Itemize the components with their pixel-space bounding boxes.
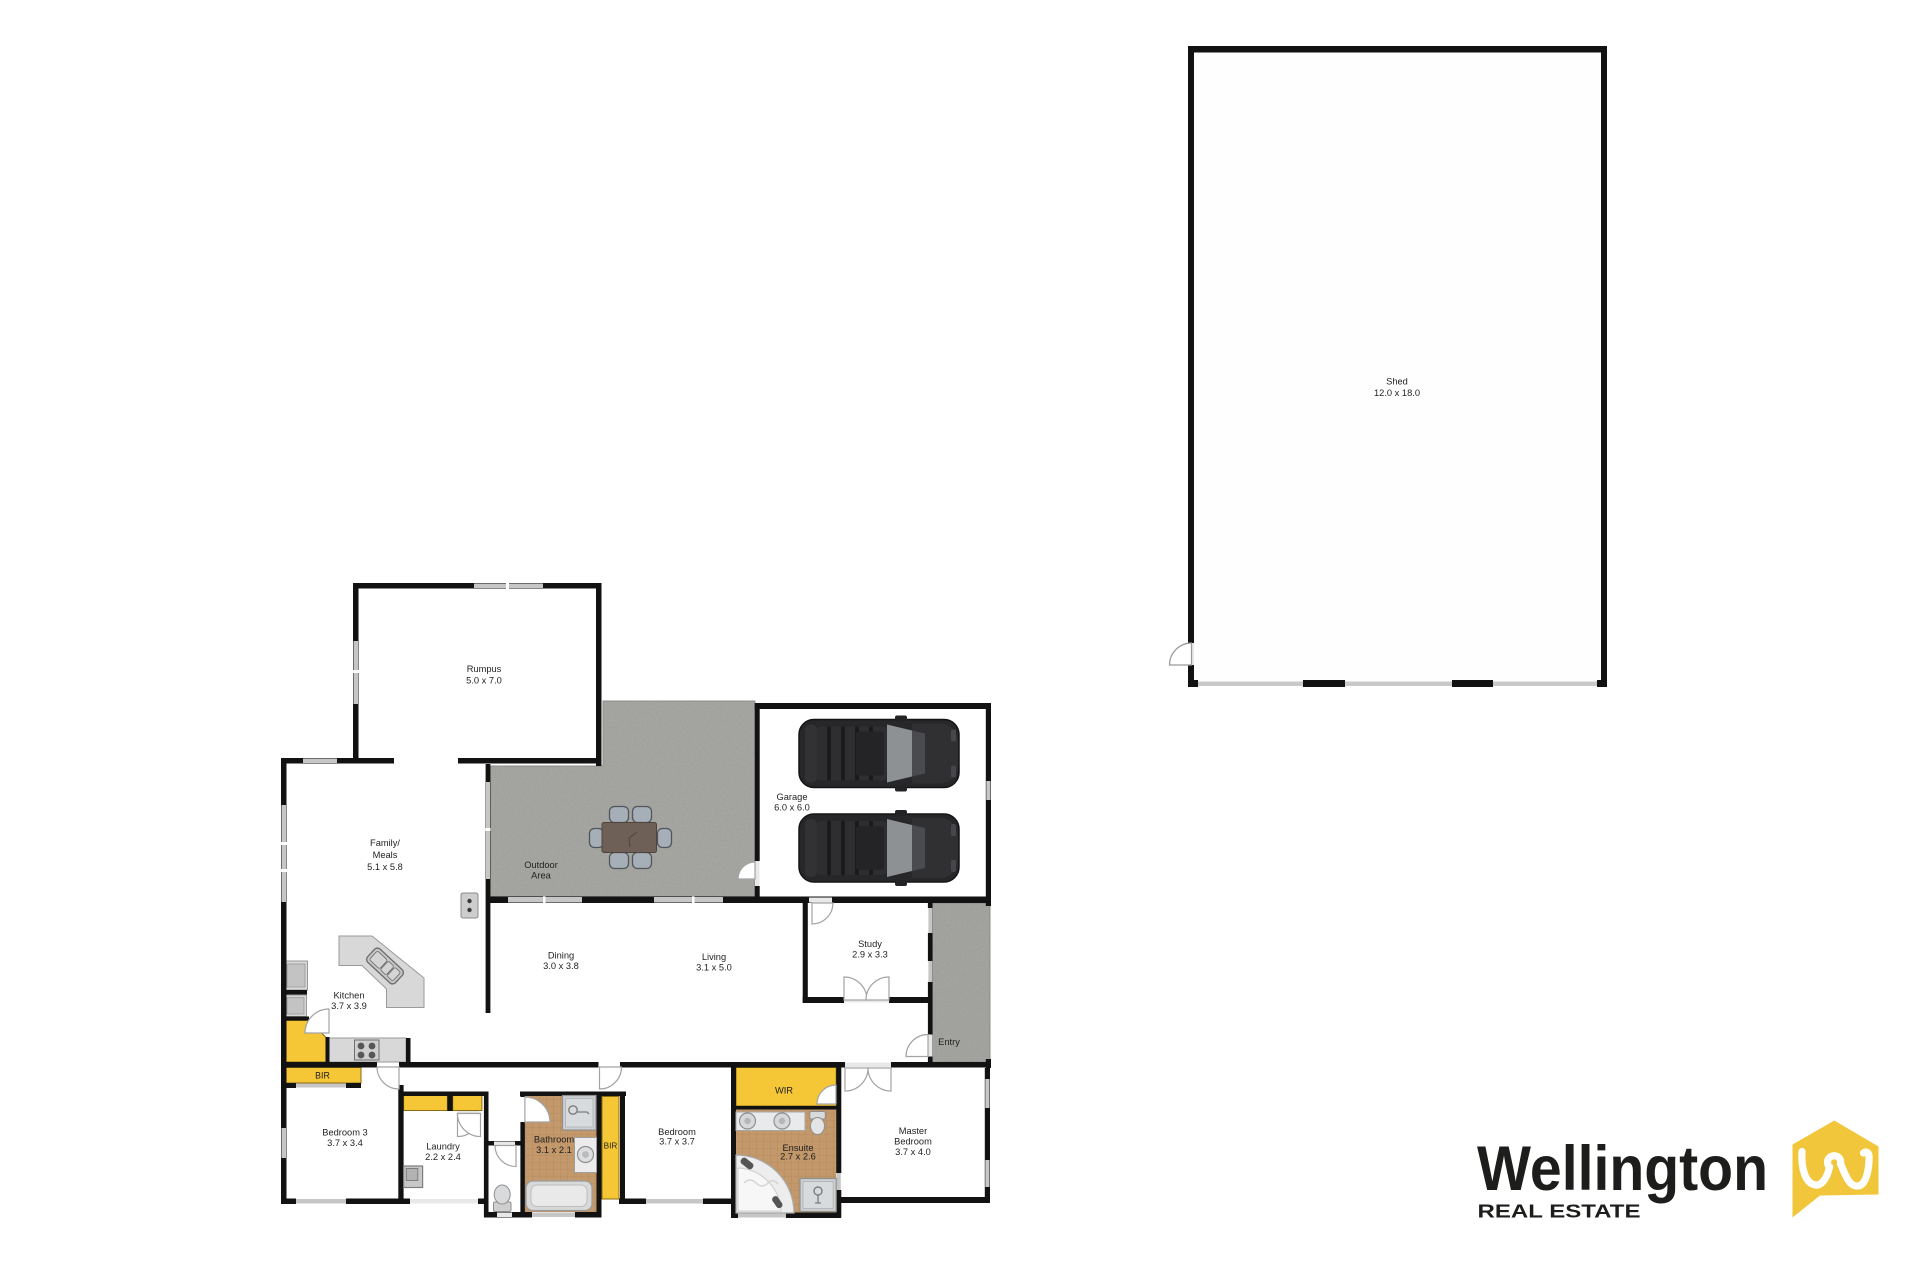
svg-text:Shed: Shed <box>1386 377 1408 387</box>
svg-text:Kitchen: Kitchen <box>333 991 364 1001</box>
svg-text:BIR: BIR <box>604 1142 618 1151</box>
svg-text:REAL ESTATE: REAL ESTATE <box>1478 1201 1641 1222</box>
svg-text:WIR: WIR <box>775 1086 793 1096</box>
svg-text:Garage: Garage <box>776 792 807 802</box>
svg-text:Entry: Entry <box>938 1037 960 1047</box>
svg-text:Wellington: Wellington <box>1477 1134 1768 1204</box>
svg-text:Bedroom: Bedroom <box>894 1137 932 1147</box>
svg-text:Living: Living <box>702 952 726 962</box>
svg-text:3.0 x 3.8: 3.0 x 3.8 <box>543 961 579 971</box>
svg-text:2.2 x 2.4: 2.2 x 2.4 <box>425 1152 461 1162</box>
svg-text:Laundry: Laundry <box>426 1142 460 1152</box>
svg-text:Dining: Dining <box>548 951 574 961</box>
svg-text:3.1 x 2.1: 3.1 x 2.1 <box>536 1145 572 1155</box>
svg-text:3.1 x 5.0: 3.1 x 5.0 <box>696 963 732 973</box>
svg-text:Bathroom: Bathroom <box>534 1135 575 1145</box>
svg-text:Area: Area <box>531 871 551 881</box>
svg-text:3.7 x 4.0: 3.7 x 4.0 <box>895 1147 931 1157</box>
svg-text:Study: Study <box>858 939 882 949</box>
svg-text:2.9 x 3.3: 2.9 x 3.3 <box>852 950 888 960</box>
svg-text:5.1 x 5.8: 5.1 x 5.8 <box>367 862 403 872</box>
svg-text:Bedroom 3: Bedroom 3 <box>322 1128 367 1138</box>
svg-text:3.7 x 3.7: 3.7 x 3.7 <box>659 1137 695 1147</box>
svg-text:Family/: Family/ <box>370 838 400 848</box>
svg-text:Rumpus: Rumpus <box>467 664 502 674</box>
svg-text:2.7 x 2.6: 2.7 x 2.6 <box>780 1152 816 1162</box>
svg-text:12.0 x 18.0: 12.0 x 18.0 <box>1374 388 1420 398</box>
svg-text:5.0 x 7.0: 5.0 x 7.0 <box>466 676 502 686</box>
svg-text:3.7 x 3.4: 3.7 x 3.4 <box>327 1138 363 1148</box>
svg-text:BIR: BIR <box>315 1071 330 1081</box>
svg-text:Outdoor: Outdoor <box>524 860 558 870</box>
svg-text:Bedroom: Bedroom <box>658 1127 696 1137</box>
svg-text:Meals: Meals <box>373 850 398 860</box>
svg-text:6.0 x 6.0: 6.0 x 6.0 <box>774 803 810 813</box>
svg-text:Master: Master <box>899 1126 927 1136</box>
svg-text:3.7 x 3.9: 3.7 x 3.9 <box>331 1001 367 1011</box>
